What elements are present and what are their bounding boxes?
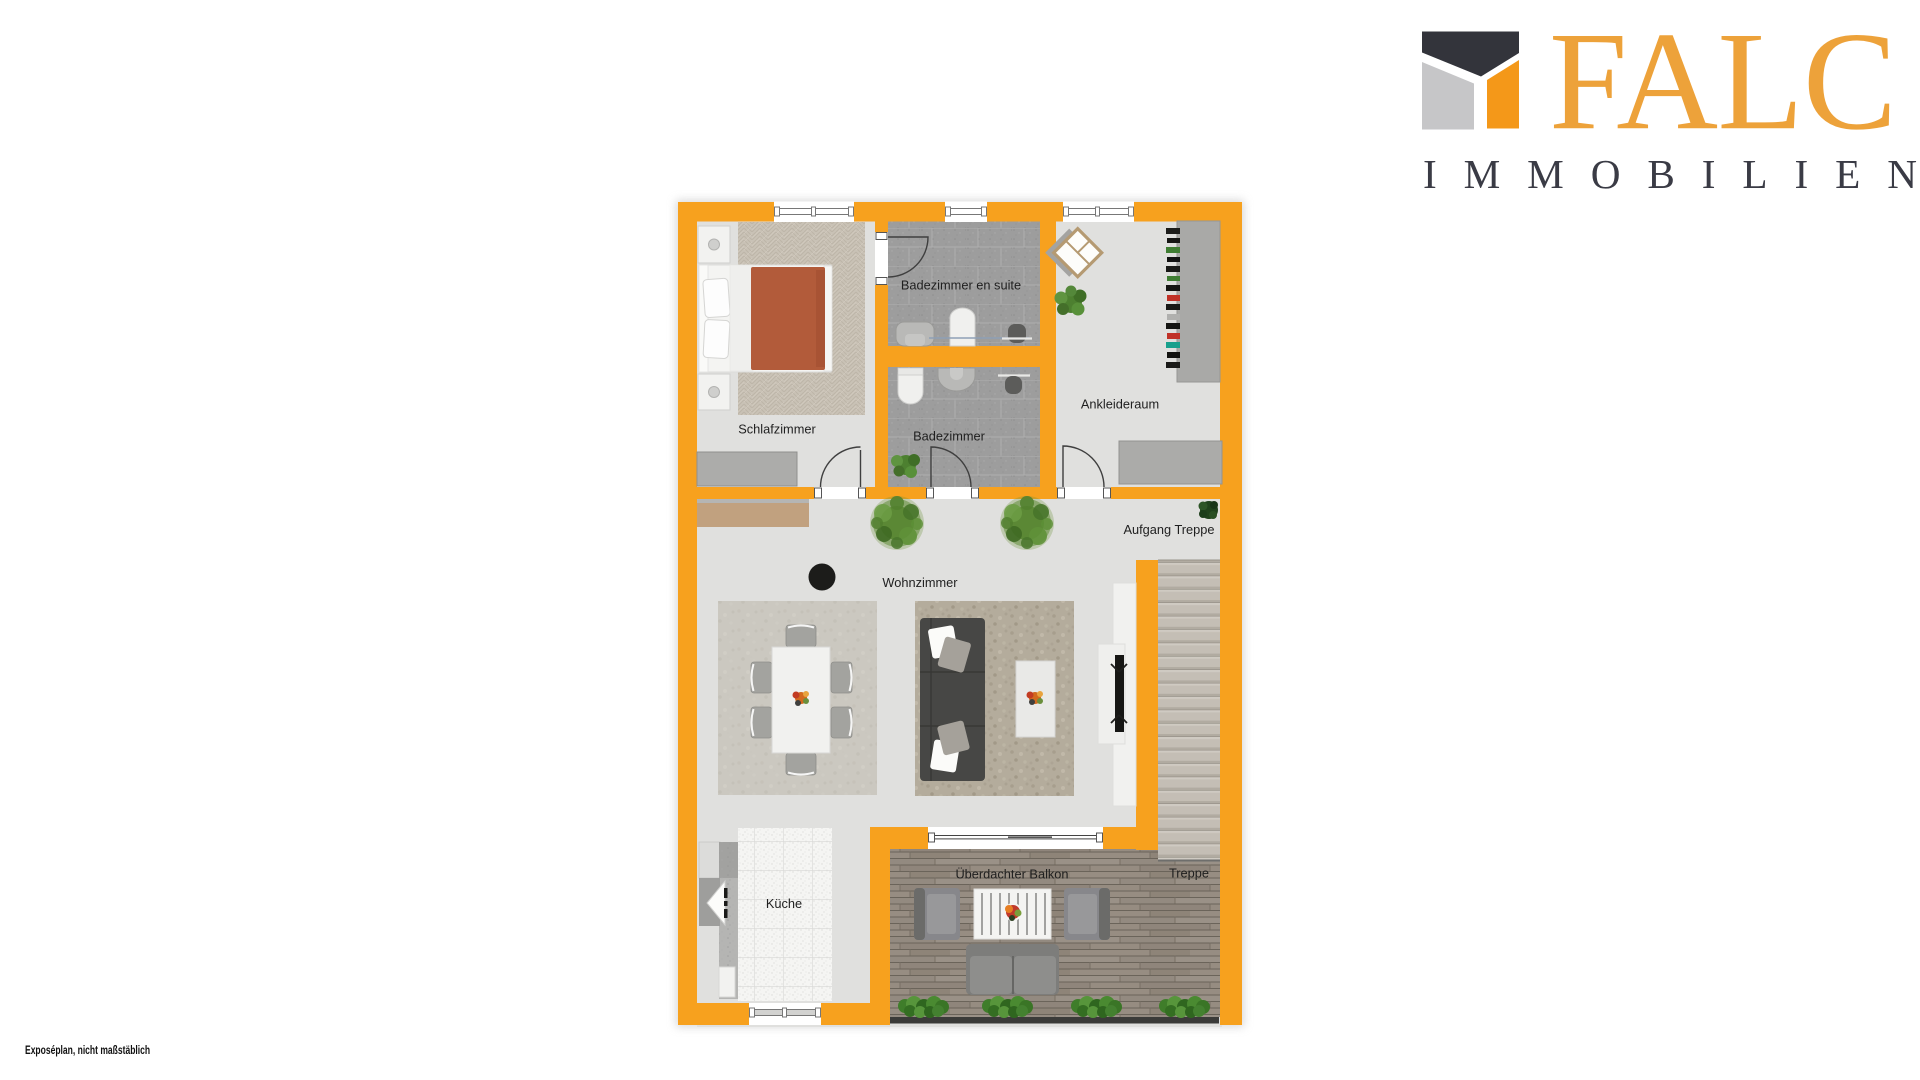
svg-text:IMMOBILIEN: IMMOBILIEN bbox=[1423, 151, 1917, 197]
svg-text:Badezimmer en suite: Badezimmer en suite bbox=[901, 278, 1021, 293]
svg-text:Überdachter Balkon: Überdachter Balkon bbox=[955, 867, 1068, 882]
svg-text:Ankleideraum: Ankleideraum bbox=[1081, 397, 1159, 412]
svg-text:Badezimmer: Badezimmer bbox=[913, 429, 986, 444]
svg-text:Exposéplan, nicht maßstäblich: Exposéplan, nicht maßstäblich bbox=[25, 1044, 150, 1058]
svg-text:Küche: Küche bbox=[766, 896, 802, 911]
svg-text:Aufgang Treppe: Aufgang Treppe bbox=[1123, 522, 1214, 537]
svg-text:Treppe: Treppe bbox=[1169, 866, 1209, 881]
svg-text:Schlafzimmer: Schlafzimmer bbox=[738, 422, 816, 437]
svg-text:FALC: FALC bbox=[1549, 3, 1897, 159]
svg-text:Wohnzimmer: Wohnzimmer bbox=[882, 575, 958, 590]
